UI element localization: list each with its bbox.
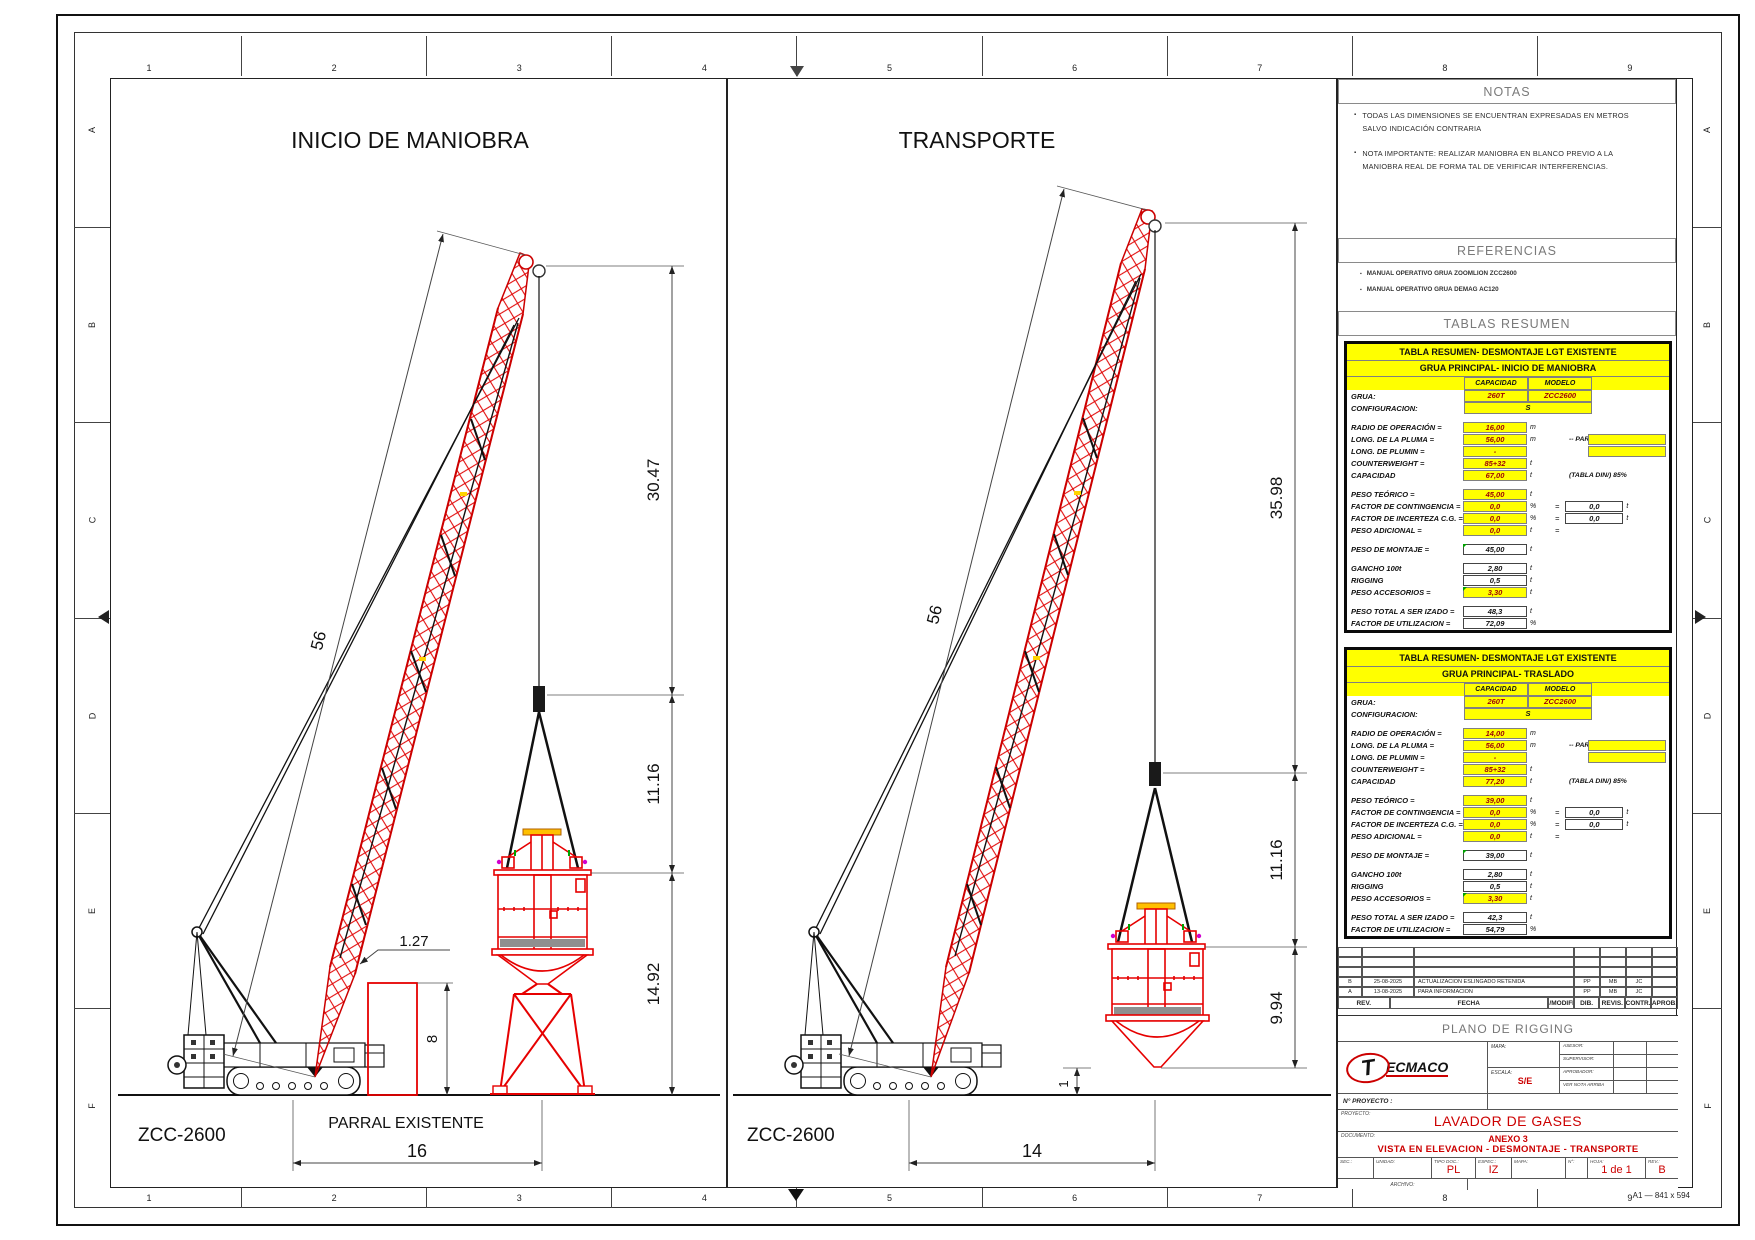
ruler-row-label: E <box>1693 814 1722 1009</box>
ruler-columns-bottom: 123456789 <box>57 1188 1722 1208</box>
revision-table: B25-08-2025ACTUALIZACION ESLINGADO RETEN… <box>1338 947 1678 1009</box>
tabla-row: PESO ADICIONAL = 0,0 t = <box>1347 525 1669 536</box>
ruler-row-label: D <box>74 619 110 814</box>
tabla-row: PESO TOTAL A SER IZADO = 48,3 t <box>1347 606 1669 617</box>
tabla-resumen-traslado: TABLA RESUMEN- DESMONTAJE LGT EXISTENTE … <box>1344 647 1672 939</box>
dimensions: 56 35.98 11.16 9.94 1 14 <box>839 186 1307 1171</box>
ruler-column-label: 5 <box>797 36 982 76</box>
dim-boom-length: 56 <box>307 629 330 652</box>
bullet-icon: ▪ <box>1360 286 1362 295</box>
tabla-row: PESO ADICIONAL = 0,0 t = <box>1347 831 1669 842</box>
ruler-columns-top: 123456789 <box>57 36 1722 76</box>
dim-tip-height: 35.98 <box>1267 477 1286 520</box>
ruler-column-label: 6 <box>983 36 1168 76</box>
right-column: NOTAS ▪ TODAS LAS DIMENSIONES SE ENCUENT… <box>1337 78 1677 1188</box>
col-capacidad: CAPACIDAD <box>1464 683 1528 696</box>
campo-mapa: MAPA: <box>1488 1042 1559 1068</box>
ruler-column-label: 7 <box>1168 1188 1353 1208</box>
tabla-row: PESO TEÓRICO = 45,00 t <box>1347 489 1669 500</box>
tabla-row: FACTOR DE UTILIZACION = 72,09 % <box>1347 618 1669 629</box>
dim-radius: 16 <box>407 1141 427 1161</box>
ruler-column-label: 2 <box>242 1188 427 1208</box>
col-capacidad: CAPACIDAD <box>1464 377 1528 390</box>
hoja-valor: 1 de 1 <box>1588 1164 1645 1176</box>
ruler-row-label: B <box>1693 228 1722 423</box>
center-mark-left-icon <box>98 610 109 624</box>
dim-parral-height: 8 <box>424 1035 441 1043</box>
center-mark-right-icon <box>1695 610 1706 624</box>
ruler-column-label: 5 <box>797 1188 982 1208</box>
tabla-row: LONG. DE LA PLUMA = 56,00 m -- PARTES: <box>1347 434 1669 445</box>
tabla-row: CAPACIDAD 77,20 t (TABLA DIN/) 85% <box>1347 776 1669 787</box>
parral-label: PARRAL EXISTENTE <box>328 1115 484 1132</box>
ruler-column-label: 6 <box>983 1188 1168 1208</box>
revision-row: A13-08-2025PARA INFORMACION PPMBJC <box>1338 987 1678 997</box>
tipodoc-valor: PL <box>1432 1164 1475 1176</box>
logo-oval-icon: T <box>1344 1050 1392 1086</box>
ruler-row-label: A <box>1693 33 1722 228</box>
tabla1-subtitulo: GRUA PRINCIPAL- INICIO DE MANIOBRA <box>1347 361 1669 377</box>
ruler-row-label: C <box>74 423 110 618</box>
tabla2-titulo: TABLA RESUMEN- DESMONTAJE LGT EXISTENTE <box>1347 650 1669 667</box>
ruler-row-label: E <box>74 814 110 1009</box>
tabla-row: COUNTERWEIGHT = 85+32 t <box>1347 764 1669 775</box>
tabla-row: PESO TOTAL A SER IZADO = 42,3 t <box>1347 912 1669 923</box>
ruler-column-label: 3 <box>427 1188 612 1208</box>
tabla-row: COUNTERWEIGHT = 85+32 t <box>1347 458 1669 469</box>
configuracion: S <box>1464 402 1592 414</box>
grua-modelo: ZCC2600 <box>1528 390 1592 402</box>
col-modelo: MODELO <box>1528 377 1592 390</box>
tabla-row: LONG. DE LA PLUMA = 56,00 m -- PARTES: <box>1347 740 1669 751</box>
tabla-row: FACTOR DE CONTINGENCIA = 0,0 % = 0,0 t <box>1347 807 1669 818</box>
hook-block <box>1149 762 1161 786</box>
revision-header-row: REV.FECHAEMISIÓN/MODIFICACIÓNDIB.REVIS.C… <box>1338 997 1678 1009</box>
slings <box>1118 788 1192 942</box>
tabla-row: FACTOR DE INCERTEZA C.G. = 0,0 % = 0,0 t <box>1347 819 1669 830</box>
rev-valor: B <box>1646 1164 1678 1176</box>
crane-model-label: ZCC-2600 <box>138 1125 226 1146</box>
proyecto-valor: LAVADOR DE GASES <box>1434 1113 1582 1129</box>
nota-item: ▪ TODAS LAS DIMENSIONES SE ENCUENTRAN EX… <box>1354 109 1692 135</box>
support-tower <box>490 984 595 1094</box>
crane-model-label: ZCC-2600 <box>747 1125 835 1146</box>
ruler-row-label: A <box>74 33 110 228</box>
referencias-list: ▪MANUAL OPERATIVO GRUA ZOOMLION ZCC2600 … <box>1338 270 1676 302</box>
cell-marker-icon <box>1463 850 1467 854</box>
campo-asesor: ASESOR: <box>1560 1042 1614 1054</box>
notas-header: NOTAS <box>1338 79 1676 104</box>
tabla2-subtitulo: GRUA PRINCIPAL- TRASLADO <box>1347 667 1669 683</box>
notas-list: ▪ TODAS LAS DIMENSIONES SE ENCUENTRAN EX… <box>1338 109 1676 185</box>
tabla-row: LONG. DE PLUMIN = - <box>1347 752 1669 763</box>
ruler-row-label: C <box>1693 423 1722 618</box>
center-mark-bottom-icon <box>788 1189 804 1201</box>
nproyecto-label: N° PROYECTO : <box>1338 1094 1488 1109</box>
escala-valor: S/E <box>1491 1076 1559 1086</box>
ruler-column-label: 7 <box>1168 36 1353 76</box>
dimensions: 56 30.47 11.16 14.92 8 1.27 16 <box>223 231 684 1171</box>
campo-aprobador: APROBADOR: <box>1560 1068 1614 1080</box>
tabla1-titulo: TABLA RESUMEN- DESMONTAJE LGT EXISTENTE <box>1347 344 1669 361</box>
grua-modelo: ZCC2600 <box>1528 696 1592 708</box>
dim-sling-height: 11.16 <box>644 763 663 804</box>
partes-box <box>1588 752 1666 763</box>
espec-valor: IZ <box>1476 1164 1511 1176</box>
hoist-and-load <box>490 276 595 1094</box>
drawing-sheet: 123456789 123456789 ABCDEF ABCDEF INICIO… <box>0 0 1755 1240</box>
grua-capacidad: 260T <box>1464 390 1528 402</box>
grua-capacidad: 260T <box>1464 696 1528 708</box>
tabla-row: RADIO DE OPERACIÓN = 14,00 m <box>1347 728 1669 739</box>
bullet-icon: ▪ <box>1354 109 1356 135</box>
dim-sling-height: 11.16 <box>1267 839 1286 880</box>
dim-radius: 14 <box>1022 1141 1042 1161</box>
dim-ground-clearance: 1 <box>1056 1080 1071 1087</box>
documento-label: DOCUMENTO: <box>1341 1133 1375 1139</box>
tabla-row: CAPACIDAD 67,00 t (TABLA DIN/) 85% <box>1347 470 1669 481</box>
drawing-transporte: TRANSPORTE <box>727 78 1337 1188</box>
ruler-row-label: F <box>1693 1009 1722 1203</box>
referencias-header: REFERENCIAS <box>1338 238 1676 263</box>
tecmaco-logo: T ECMACO <box>1338 1042 1488 1094</box>
tabla-row: PESO DE MONTAJE = 39,00 t <box>1347 850 1669 861</box>
plano-title: PLANO DE RIGGING <box>1338 1016 1678 1042</box>
tablas-header: TABLAS RESUMEN <box>1338 311 1676 336</box>
bullet-icon: ▪ <box>1354 147 1356 173</box>
archivo-label: ARCHIVO: <box>1338 1179 1468 1190</box>
tabla-row: FACTOR DE INCERTEZA C.G. = 0,0 % = 0,0 t <box>1347 513 1669 524</box>
tabla-row: FACTOR DE UTILIZACION = 54,79 % <box>1347 924 1669 935</box>
revision-row: B25-08-2025ACTUALIZACION ESLINGADO RETEN… <box>1338 977 1678 987</box>
tabla-row: GANCHO 100t 2,80 t <box>1347 869 1669 880</box>
documento-anexo: ANEXO 3 <box>1488 1134 1528 1144</box>
ruler-row-label: B <box>74 228 110 423</box>
panel-title-transporte: TRANSPORTE <box>899 127 1056 153</box>
ruler-column-label: 2 <box>242 36 427 76</box>
hook-block <box>533 686 545 712</box>
tabla-row: RADIO DE OPERACIÓN = 16,00 m <box>1347 422 1669 433</box>
ruler-row-label: D <box>1693 619 1722 814</box>
ruler-column-label: 8 <box>1353 36 1538 76</box>
sheet-format-label: A1 — 841 x 594 <box>1500 1191 1690 1200</box>
configuracion: S <box>1464 708 1592 720</box>
center-mark-top-icon <box>790 66 804 77</box>
proyecto-label: PROYECTO: <box>1341 1111 1370 1117</box>
dim-tip-height: 30.47 <box>644 459 663 502</box>
parral-rect <box>368 983 417 1095</box>
dim-lower-height: 14.92 <box>644 963 663 1006</box>
panel-title-inicio: INICIO DE MANIOBRA <box>291 127 529 153</box>
tabla-row: PESO TEÓRICO = 39,00 t <box>1347 795 1669 806</box>
cell-marker-icon <box>1463 587 1467 591</box>
tabla-row: FACTOR DE CONTINGENCIA = 0,0 % = 0,0 t <box>1347 501 1669 512</box>
tabla-row: PESO ACCESORIOS = 3,30 t <box>1347 893 1669 904</box>
partes-box <box>1588 446 1666 457</box>
referencia-item: ▪MANUAL OPERATIVO GRUA ZOOMLION ZCC2600 <box>1360 270 1698 279</box>
ruler-row-label: F <box>74 1009 110 1203</box>
cell-marker-icon <box>1463 893 1467 897</box>
dim-load-height: 9.94 <box>1267 991 1286 1024</box>
tabla-row: PESO DE MONTAJE = 45,00 t <box>1347 544 1669 555</box>
bullet-icon: ▪ <box>1360 270 1362 279</box>
tabla-row: RIGGING 0,5 t <box>1347 881 1669 892</box>
campo-supervisor: SUPERVISOR: <box>1560 1055 1614 1067</box>
tabla-row: GANCHO 100t 2,80 t <box>1347 563 1669 574</box>
campo-escala: ESCALA: S/E <box>1488 1068 1559 1093</box>
title-block: PLANO DE RIGGING T ECMACO MAPA: ESCALA: … <box>1338 1015 1678 1189</box>
dim-boom-length: 56 <box>923 603 946 626</box>
drawing-inicio-maniobra: INICIO DE MANIOBRA <box>110 78 727 1188</box>
campo-nota: VER NOTA ARRIBA <box>1560 1081 1614 1093</box>
tabla-row: PESO ACCESORIOS = 3,30 t <box>1347 587 1669 598</box>
ruler-column-label: 4 <box>612 1188 797 1208</box>
col-modelo: MODELO <box>1528 683 1592 696</box>
partes-box <box>1588 740 1666 751</box>
tabla-row: LONG. DE PLUMIN = - <box>1347 446 1669 457</box>
documento-vista: VISTA EN ELEVACION - DESMONTAJE - TRANSP… <box>1378 1144 1639 1155</box>
ruler-column-label: 4 <box>612 36 797 76</box>
tabla-resumen-inicio: TABLA RESUMEN- DESMONTAJE LGT EXISTENTE … <box>1344 341 1672 633</box>
cell-marker-icon <box>1463 544 1467 548</box>
partes-box <box>1588 434 1666 445</box>
tabla-row: RIGGING 0,5 t <box>1347 575 1669 586</box>
referencia-item: ▪MANUAL OPERATIVO GRUA DEMAG AC120 <box>1360 286 1698 295</box>
dim-clearance: 1.27 <box>399 933 428 950</box>
nota-item: ▪ NOTA IMPORTANTE: REALIZAR MANIOBRA EN … <box>1354 147 1692 173</box>
ruler-column-label: 3 <box>427 36 612 76</box>
